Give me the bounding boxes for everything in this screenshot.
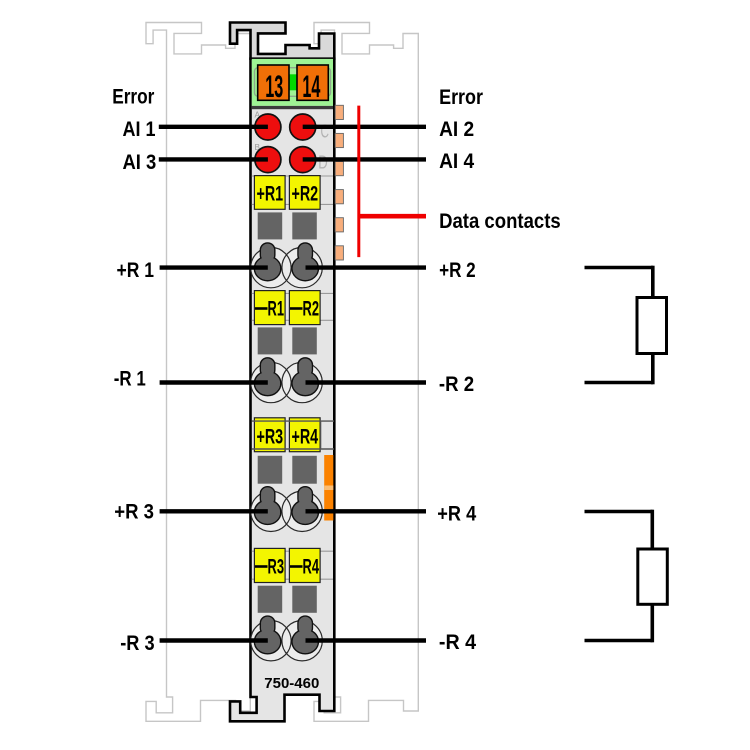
svg-text:AI 3: AI 3 [123, 151, 157, 174]
svg-text:-R 4: -R 4 [439, 631, 476, 654]
svg-text:C: C [321, 121, 330, 142]
svg-text:Error: Error [112, 85, 154, 108]
svg-text:+R2: +R2 [291, 183, 318, 206]
svg-text:+R3: +R3 [256, 425, 283, 448]
svg-text:AI 1: AI 1 [123, 118, 156, 141]
svg-text:+R 3: +R 3 [114, 501, 154, 524]
svg-text:R2: R2 [303, 298, 320, 321]
svg-text:Error: Error [439, 86, 483, 109]
svg-text:D: D [318, 152, 328, 173]
svg-text:-R 2: -R 2 [439, 373, 474, 396]
svg-text:R4: R4 [303, 556, 320, 579]
svg-text:-R 1: -R 1 [114, 367, 146, 390]
svg-text:-R 3: -R 3 [120, 632, 154, 655]
svg-text:R3: R3 [268, 556, 285, 579]
svg-text:Data contacts: Data contacts [439, 210, 561, 233]
svg-text:14: 14 [302, 68, 320, 104]
svg-text:+R 4: +R 4 [437, 502, 476, 525]
svg-text:13: 13 [265, 68, 283, 104]
svg-text:R1: R1 [268, 298, 285, 321]
svg-text:+R 2: +R 2 [439, 259, 476, 282]
svg-text:AI 4: AI 4 [439, 150, 474, 173]
svg-text:750-460: 750-460 [264, 675, 319, 692]
svg-text:+R 1: +R 1 [117, 259, 155, 282]
svg-text:+R1: +R1 [256, 183, 283, 206]
svg-text:+R4: +R4 [291, 425, 318, 448]
svg-text:AI 2: AI 2 [439, 118, 474, 141]
